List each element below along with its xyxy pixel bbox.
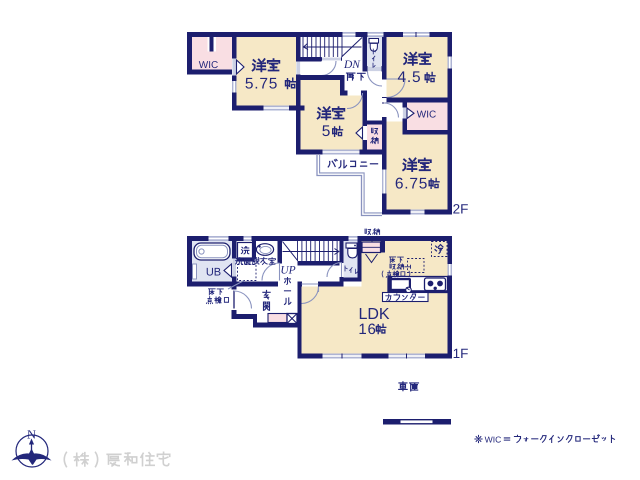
svg-text:6.75: 6.75: [395, 176, 428, 193]
svg-text:5: 5: [322, 123, 331, 140]
svg-text:N: N: [27, 428, 36, 442]
svg-text:4.5: 4.5: [398, 69, 422, 86]
svg-text:WIC: WIC: [485, 434, 502, 444]
svg-text:2F: 2F: [453, 202, 469, 217]
svg-text:UP: UP: [280, 265, 295, 277]
svg-text:WIC: WIC: [199, 60, 218, 71]
svg-text:1F: 1F: [453, 346, 469, 361]
svg-text:WIC: WIC: [417, 110, 436, 121]
svg-text:DN: DN: [343, 59, 361, 71]
svg-text:5.75: 5.75: [245, 76, 278, 93]
svg-text:16: 16: [358, 321, 376, 338]
svg-text:UB: UB: [206, 267, 221, 279]
